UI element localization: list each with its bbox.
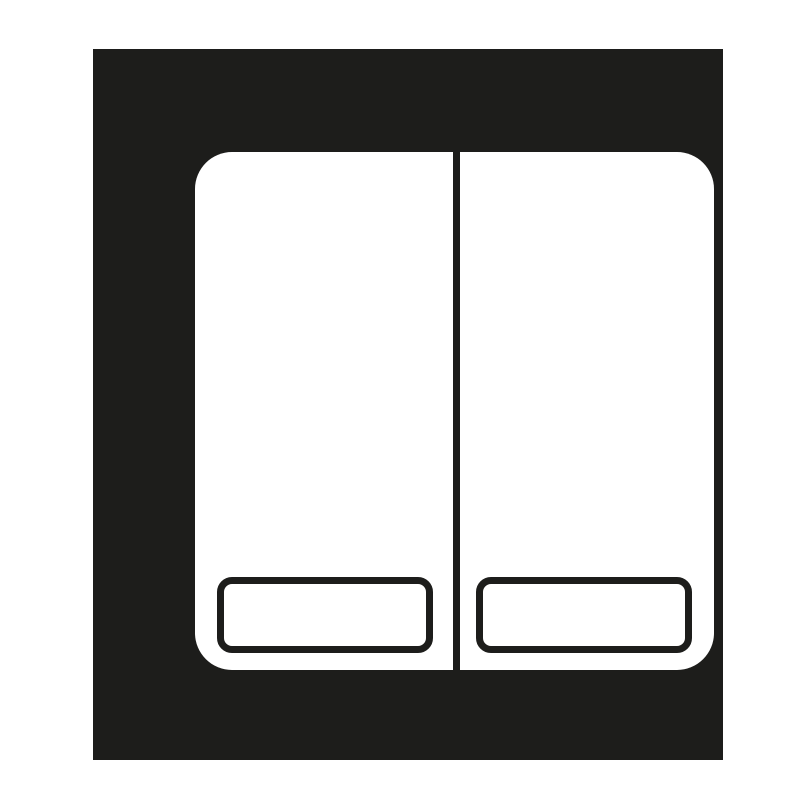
double-rocker-light-switch-icon xyxy=(0,0,800,800)
rocker-left-indicator-window xyxy=(217,577,433,653)
rocker-left xyxy=(195,152,453,670)
rocker-right-indicator-window xyxy=(476,577,692,653)
rocker-right xyxy=(460,152,714,670)
rocker-divider xyxy=(453,152,460,670)
